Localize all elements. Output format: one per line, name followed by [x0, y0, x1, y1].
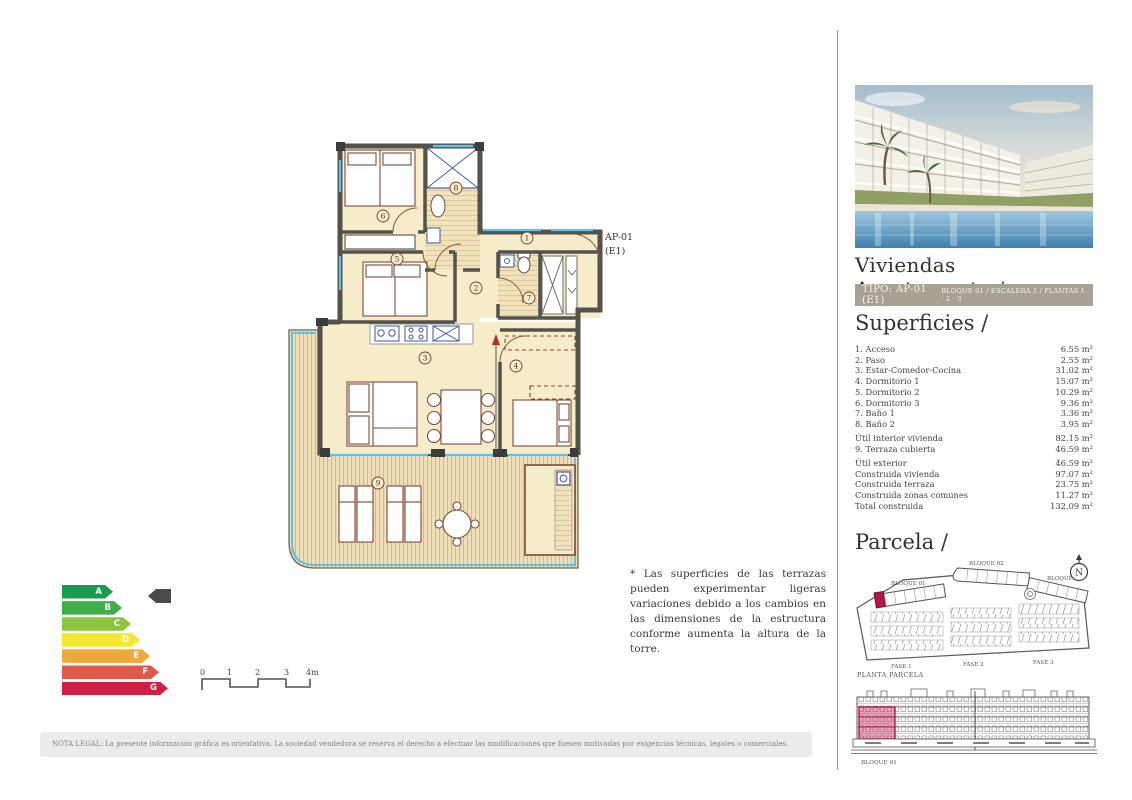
surface-row: Total construida132.09 m²: [855, 501, 1093, 512]
surface-label: Útil exterior: [855, 458, 907, 469]
building-elevation: BLOQUE 01: [851, 684, 1097, 768]
building-photo: [855, 85, 1093, 248]
surface-label: Total construida: [855, 501, 923, 512]
surface-value: 15.07 m²: [1055, 376, 1093, 387]
elevation-base: [851, 739, 1097, 754]
scale-tick: 2: [255, 668, 260, 677]
surface-row: Útil interior vivienda82.15 m²: [855, 433, 1093, 444]
surface-value: 3.95 m²: [1061, 419, 1093, 430]
surface-row: 7. Baño 13.36 m²: [855, 408, 1093, 419]
surface-value: 23.75 m²: [1055, 479, 1093, 490]
surface-label: 8. Baño 2: [855, 419, 895, 430]
energy-row-f: F: [62, 665, 192, 679]
energy-letter: E: [133, 651, 139, 661]
surfaces-heading: Superficies /: [855, 311, 1095, 335]
surface-value: 3.36 m²: [1061, 408, 1093, 419]
surface-label: 5. Dormitorio 2: [855, 387, 920, 398]
type-label: TIPO: AP-01 (E1): [862, 284, 941, 306]
surface-value: 6.55 m²: [1061, 344, 1093, 355]
room-number: 4: [514, 362, 519, 371]
energy-row-d: D: [62, 633, 192, 647]
surface-value: 2.55 m²: [1061, 355, 1093, 366]
north-compass: N: [1071, 554, 1088, 581]
surface-label: 2. Paso: [855, 355, 885, 366]
scale-tick: 0: [200, 668, 205, 677]
surface-label: Útil interior vivienda: [855, 433, 943, 444]
kitchen-counter: [370, 324, 473, 344]
surface-row: 3. Estar-Comedor-Cocina31.02 m²: [855, 365, 1093, 376]
surface-value: 97.07 m²: [1055, 469, 1093, 480]
energy-letter: G: [150, 683, 157, 693]
surface-row: 6. Dormitorio 39.36 m²: [855, 398, 1093, 409]
type-location: BLOQUE 01 / ESCALERA 1 / PLANTAS 1 · 2 ·…: [941, 287, 1086, 303]
fase-1-label: FASE 1: [891, 664, 912, 670]
surface-label: Construida zonas comunes: [855, 490, 968, 501]
surface-value: 82.15 m²: [1055, 433, 1093, 444]
surface-row: 2. Paso2.55 m²: [855, 355, 1093, 366]
energy-row-e: E: [62, 649, 192, 663]
terrace-storage: [525, 465, 575, 555]
room-number: 2: [474, 284, 479, 293]
parcela-heading: Parcela /: [855, 530, 1095, 554]
scale-tick: 1: [227, 668, 232, 677]
surface-row: Construida vivienda97.07 m²: [855, 469, 1093, 480]
surface-row: Construida terraza23.75 m²: [855, 479, 1093, 490]
room-number: 3: [423, 354, 428, 363]
surface-row: 4. Dormitorio 115.07 m²: [855, 376, 1093, 387]
surface-label: 9. Terraza cubierta: [855, 444, 935, 455]
surface-label: Construida vivienda: [855, 469, 939, 480]
surface-row: Útil exterior46.59 m²: [855, 458, 1093, 469]
surface-row: Construida zonas comunes11.27 m²: [855, 490, 1093, 501]
surface-value: 11.27 m²: [1055, 490, 1093, 501]
floor-plan: 1 2 3 4 5 6 7 8 9 AP-01 (E1): [283, 138, 633, 583]
surface-row: 5. Dormitorio 210.29 m²: [855, 387, 1093, 398]
surface-label: 6. Dormitorio 3: [855, 398, 920, 409]
energy-letter: A: [95, 587, 102, 597]
room-number: 5: [395, 255, 400, 264]
elevation-highlighted-unit: [859, 707, 895, 739]
surface-value: 31.02 m²: [1055, 365, 1093, 376]
surface-row: 8. Baño 23.95 m²: [855, 419, 1093, 430]
energy-letter: B: [105, 603, 111, 613]
energy-row-c: C: [62, 617, 192, 631]
elevator-core: [542, 256, 577, 314]
surface-row: 9. Terraza cubierta46.59 m²: [855, 444, 1093, 455]
unit-sublabel: (E1): [605, 246, 625, 257]
surfaces-table: 1. Acceso6.55 m² 2. Paso2.55 m² 3. Estar…: [855, 344, 1093, 512]
fase-3-label: FASE 3: [1033, 660, 1054, 666]
site-plan-caption: PLANTA PARCELA: [857, 671, 923, 679]
energy-letter: C: [114, 619, 120, 629]
surface-label: 4. Dormitorio 1: [855, 376, 920, 387]
surface-value: 46.59 m²: [1055, 444, 1093, 455]
surface-row: 1. Acceso6.55 m²: [855, 344, 1093, 355]
room-number: 7: [527, 294, 532, 303]
energy-efficiency-label: A B C D E F G: [62, 585, 192, 698]
energy-row-g: G: [62, 682, 192, 696]
room-number: 1: [525, 234, 530, 243]
surface-value: 46.59 m²: [1055, 458, 1093, 469]
terrace-disclaimer: * Las superficies de las terrazas pueden…: [630, 567, 826, 656]
scale-tick: 3: [284, 668, 289, 677]
room-number: 6: [381, 212, 386, 221]
scale-bar: 0 1 2 3 4m: [198, 666, 323, 694]
type-bar: TIPO: AP-01 (E1) BLOQUE 01 / ESCALERA 1 …: [855, 284, 1093, 306]
site-plan: BLOQUE 01 BLOQUE 02 BLOQUE 03 FASE 1 FAS…: [851, 554, 1097, 672]
site-block-1-label: BLOQUE 01: [891, 581, 926, 587]
site-block-2-label: BLOQUE 02: [969, 561, 1004, 567]
elevation-roof: [867, 689, 1073, 697]
unit-label: AP-01: [604, 232, 633, 243]
surface-value: 9.36 m²: [1061, 398, 1093, 409]
elevation-label: BLOQUE 01: [861, 760, 897, 766]
surface-label: 1. Acceso: [855, 344, 895, 355]
surface-label: 3. Estar-Comedor-Cocina: [855, 365, 961, 376]
sidebar-divider: [837, 30, 838, 770]
energy-row-a: A: [62, 585, 192, 599]
energy-letter: F: [142, 667, 148, 677]
surface-value: 10.29 m²: [1055, 387, 1093, 398]
scale-tick: 4m: [306, 668, 319, 677]
compass-n: N: [1075, 569, 1083, 579]
surface-value: 132.09 m²: [1050, 501, 1093, 512]
surface-label: 7. Baño 1: [855, 408, 895, 419]
room-number: 8: [454, 184, 459, 193]
room-number: 9: [376, 479, 381, 488]
highlighted-unit: [874, 592, 885, 608]
scale-bar-line: [202, 679, 310, 690]
energy-row-b: B: [62, 601, 192, 615]
energy-letter: D: [122, 635, 129, 645]
legal-note: NOTA LEGAL: La presente información gráf…: [40, 732, 812, 757]
fase-2-label: FASE 2: [963, 662, 984, 668]
surface-label: Construida terraza: [855, 479, 935, 490]
